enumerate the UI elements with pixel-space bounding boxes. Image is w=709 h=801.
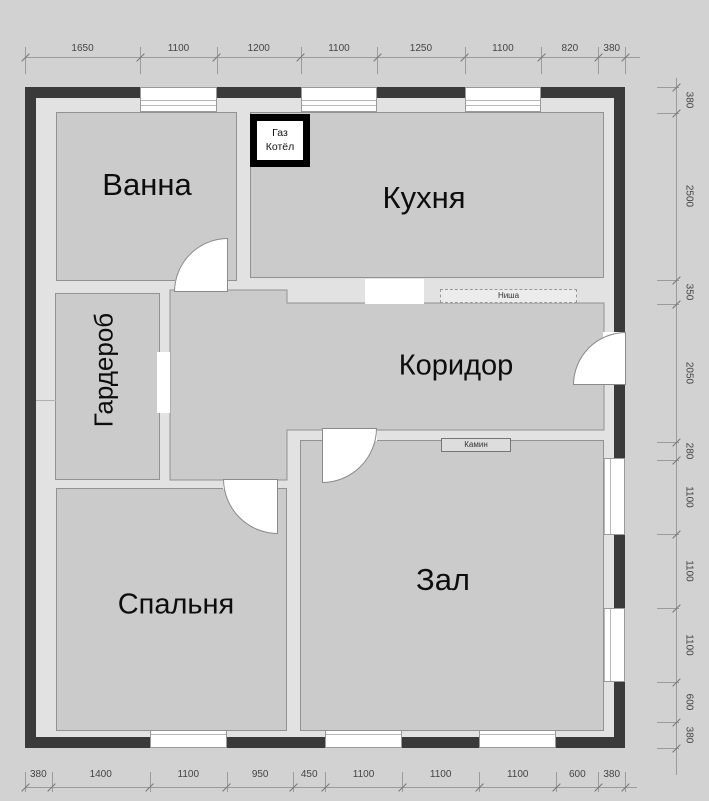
dim-tick	[479, 772, 480, 792]
dim-tick	[325, 772, 326, 792]
dim-tick	[293, 772, 294, 792]
dim-label-bottom: 1100	[507, 769, 529, 780]
dim-label-right: 380	[684, 727, 695, 744]
dim-tick	[377, 47, 378, 74]
room-label-bath: Ванна	[102, 167, 191, 203]
dim-label-right: 2050	[684, 362, 695, 384]
gas-boiler-line1: Газ	[272, 127, 288, 140]
dim-tick	[140, 47, 141, 74]
wardrobe-opening	[157, 352, 170, 413]
dim-label-top: 1200	[248, 43, 270, 54]
gas-boiler-line2: Котёл	[266, 141, 295, 154]
dim-tick	[301, 47, 302, 74]
dim-tick	[217, 47, 218, 74]
room-label-bedroom: Спальня	[118, 589, 235, 622]
kitchen-passage-opening	[365, 279, 424, 304]
dim-label-right: 2500	[684, 185, 695, 207]
dim-label-bottom: 950	[252, 769, 269, 780]
dim-label-bottom: 600	[569, 769, 586, 780]
dim-label-top: 1650	[71, 43, 93, 54]
dim-label-bottom: 380	[30, 769, 47, 780]
dim-tick	[465, 47, 466, 74]
dim-tick	[556, 772, 557, 792]
dim-label-top: 820	[562, 43, 579, 54]
dim-label-top: 1100	[168, 43, 190, 54]
dim-label-right: 1100	[684, 634, 695, 656]
dim-label-right: 1100	[684, 487, 695, 509]
room-label-kitchen: Кухня	[383, 180, 466, 216]
dim-tick	[625, 772, 626, 792]
dim-label-right: 350	[684, 284, 695, 301]
dim-label-bottom: 450	[301, 769, 318, 780]
dim-label-right: 600	[684, 694, 695, 711]
dim-label-top: 1250	[410, 43, 432, 54]
gas-boiler-box: Газ Котёл	[250, 114, 310, 167]
dim-label-bottom: 1100	[178, 769, 200, 780]
dim-label-bottom: 380	[603, 769, 620, 780]
dim-tick	[25, 47, 26, 74]
dim-label-bottom: 1100	[353, 769, 375, 780]
dim-tick	[541, 47, 542, 74]
dim-label-bottom: 1400	[90, 769, 112, 780]
fireplace-box: Камин	[441, 438, 511, 452]
room-label-wardrobe: Гардероб	[89, 313, 120, 427]
dim-tick	[150, 772, 151, 792]
dim-label-right: 1100	[684, 561, 695, 583]
dim-tick	[625, 47, 626, 74]
floor-plan-canvas: Газ Котёл Ниша Камин Ванна Кухня Гардеро…	[0, 0, 709, 801]
dim-label-top: 380	[603, 43, 620, 54]
dim-tick	[227, 772, 228, 792]
dim-tick	[598, 772, 599, 792]
dim-label-top: 1100	[492, 43, 514, 54]
dim-tick	[402, 772, 403, 792]
room-label-corridor: Коридор	[399, 350, 514, 383]
room-label-hall: Зал	[416, 562, 470, 598]
dim-label-right: 380	[684, 91, 695, 108]
gas-boiler-label: Газ Котёл	[257, 121, 303, 160]
dim-label-top: 1100	[328, 43, 350, 54]
niche-box: Ниша	[440, 289, 577, 303]
dim-label-bottom: 1100	[430, 769, 452, 780]
dim-label-right: 280	[684, 443, 695, 460]
wall-joint-line	[36, 400, 56, 401]
dim-tick	[25, 772, 26, 792]
dim-tick	[52, 772, 53, 792]
dim-tick	[598, 47, 599, 74]
